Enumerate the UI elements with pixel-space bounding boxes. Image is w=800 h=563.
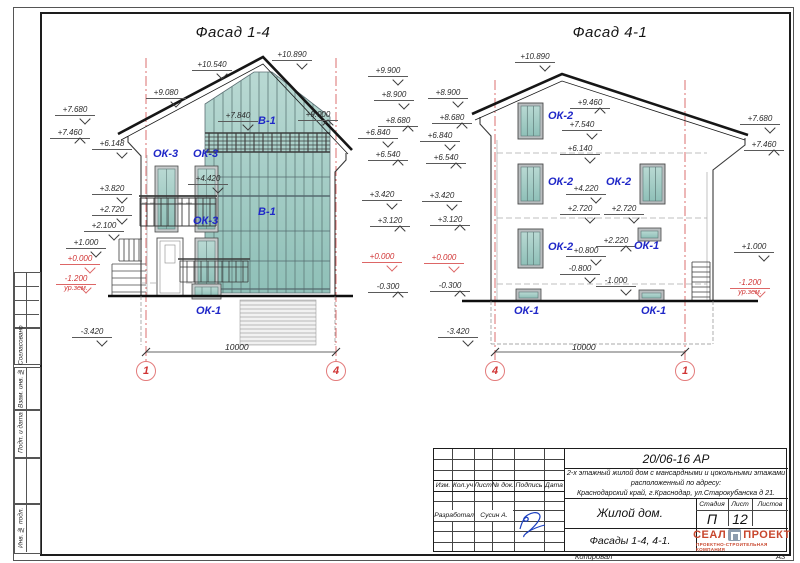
elevation-mark-ground: -1.200ур.зем. — [56, 274, 96, 285]
axis-bubble-1: 1 — [136, 361, 156, 381]
logo-text-left: СЕАЛ — [693, 529, 726, 541]
col-izm: Изм. — [434, 480, 452, 491]
col-list: Лист — [474, 480, 492, 491]
sheet-label: Лист — [728, 498, 752, 510]
elevation-mark: +1.000 — [734, 242, 774, 253]
project-description: 2-х этажный жилой дом с мансардными и цо… — [566, 468, 786, 498]
elevation-mark: +7.460 — [50, 128, 90, 139]
elevation-mark-zero: +0.000 — [424, 253, 464, 264]
signature — [512, 499, 556, 539]
title-block: Изм. Кол.уч Лист № док. Подпись Дата Раз… — [433, 448, 787, 552]
elevation-mark: +3.120 — [430, 215, 470, 226]
elevation-mark: +9.000 — [298, 110, 338, 121]
margin-label-agreed: Согласовано — [15, 327, 27, 363]
elevation-mark: +4.420 — [188, 174, 228, 185]
margin-empty-box — [14, 457, 41, 505]
elevation-mark: +1.000 — [66, 238, 106, 249]
axis-bubble-4: 4 — [485, 361, 505, 381]
elevation-mark: +8.900 — [374, 90, 414, 101]
logo-cube-icon — [728, 529, 741, 541]
elevation-mark-zero: +0.000 — [60, 254, 100, 265]
elevation-mark: +6.840 — [358, 128, 398, 139]
elevation-mark: +6.540 — [426, 153, 466, 164]
elevation-mark: +3.420 — [422, 191, 462, 202]
margin-label-vzam: Взам. инв. № — [15, 367, 27, 409]
facade-41-title: Фасад 4-1 — [545, 24, 675, 41]
elevation-mark: +6.840 — [420, 131, 460, 142]
window-label-ok1: ОК-1 — [514, 305, 539, 317]
axis-bubble-4: 4 — [326, 361, 346, 381]
drawing-name: Фасады 1-4, 4-1. — [564, 528, 696, 553]
drawing-sheet: Фасад 1-4 Фасад 4-1 +7.680 +7.460 +6.148… — [0, 0, 800, 563]
elevation-mark: +2.100 — [84, 221, 124, 232]
elevation-mark: +10.890 — [515, 52, 555, 63]
window-label-ok2: ОК-2 — [606, 176, 631, 188]
window-label-b1: В-1 — [258, 115, 276, 127]
elevation-mark: +9.080 — [146, 88, 186, 99]
elevation-mark: +9.460 — [570, 98, 610, 109]
window-label-ok1: ОК-1 — [641, 305, 666, 317]
elevation-mark: -1.000 — [596, 276, 636, 287]
col-podpis: Подпись — [514, 480, 544, 491]
elevation-mark: -0.300 — [430, 281, 470, 292]
stage-value: П — [696, 510, 728, 528]
sheets-label: Листов — [752, 498, 788, 510]
elevation-mark: +6.140 — [560, 144, 600, 155]
dimension-label: 10000 — [572, 342, 596, 352]
window-label-ok1: ОК-1 — [634, 240, 659, 252]
stage-label: Стадия — [696, 498, 728, 510]
format-label: А3 — [776, 552, 785, 561]
sheet-number: 12 — [728, 510, 752, 528]
col-data: Дата — [544, 480, 564, 491]
window-label-ok1: ОК-1 — [196, 305, 221, 317]
axis-bubble-1: 1 — [675, 361, 695, 381]
document-number: 20/06-16 АР — [564, 449, 788, 468]
logo-tagline: ПРОЕКТНО-СТРОИТЕЛЬНАЯ КОМПАНИЯ — [696, 542, 788, 552]
window-label-ok3: ОК-3 — [193, 215, 218, 227]
elevation-mark: +7.460 — [744, 140, 784, 151]
elevation-mark: +7.840 — [218, 111, 258, 122]
elevation-mark: -3.420 — [72, 327, 112, 338]
elevation-mark: +3.120 — [370, 216, 410, 227]
elevation-mark: +3.420 — [362, 190, 402, 201]
col-ndok: № док. — [492, 480, 514, 491]
elevation-mark: +8.680 — [432, 113, 472, 124]
ground-note: ур.зем. — [56, 284, 96, 292]
ground-note: ур.зем. — [730, 288, 770, 296]
elevation-mark-ground: -1.200ур.зем. — [730, 278, 770, 289]
elevation-mark-zero: +0.000 — [362, 252, 402, 263]
elevation-mark: +8.680 — [378, 116, 418, 127]
window-label-ok2: ОК-2 — [548, 241, 573, 253]
elevation-mark: +8.900 — [428, 88, 468, 99]
elevation-mark: +6.148 — [92, 139, 132, 150]
elevation-mark: +10.890 — [272, 50, 312, 61]
copied-label: Копировал — [575, 552, 612, 561]
window-label-ok3: ОК-3 — [193, 148, 218, 160]
margin-label-podp: Подп. и дата — [15, 409, 27, 457]
window-label-b1: В-1 — [258, 206, 276, 218]
col-koluch: Кол.уч — [452, 480, 474, 491]
elevation-mark: -0.300 — [368, 282, 408, 293]
elevation-mark: +6.540 — [368, 150, 408, 161]
elevation-mark: +10.540 — [192, 60, 232, 71]
elevation-mark: +2.720 — [560, 204, 600, 215]
window-label-ok3: ОК-3 — [153, 148, 178, 160]
dimension-label: 10000 — [225, 342, 249, 352]
developer-name: Сусин А. — [475, 510, 513, 521]
window-label-ok2: ОК-2 — [548, 176, 573, 188]
window-label-ok2: ОК-2 — [548, 110, 573, 122]
developed-label: Разработал — [434, 510, 474, 521]
elevation-mark: +2.720 — [604, 204, 644, 215]
elevation-mark: -3.420 — [438, 327, 478, 338]
elevation-mark: +7.680 — [55, 105, 95, 116]
facade-14-title: Фасад 1-4 — [168, 24, 298, 41]
elevation-mark: +3.820 — [92, 184, 132, 195]
elevation-mark: +2.720 — [92, 205, 132, 216]
elevation-mark: +7.680 — [740, 114, 780, 125]
elevation-mark: -0.800 — [560, 264, 600, 275]
elevation-mark: +9.900 — [368, 66, 408, 77]
company-logo: СЕАЛ ПРОЕКТ ПРОЕКТНО-СТРОИТЕЛЬНАЯ КОМПАН… — [696, 528, 788, 553]
logo-text-right: ПРОЕКТ — [743, 529, 791, 541]
margin-label-inv: Инв. № подл. — [15, 503, 27, 552]
object-name: Жилой дом. — [564, 498, 696, 528]
